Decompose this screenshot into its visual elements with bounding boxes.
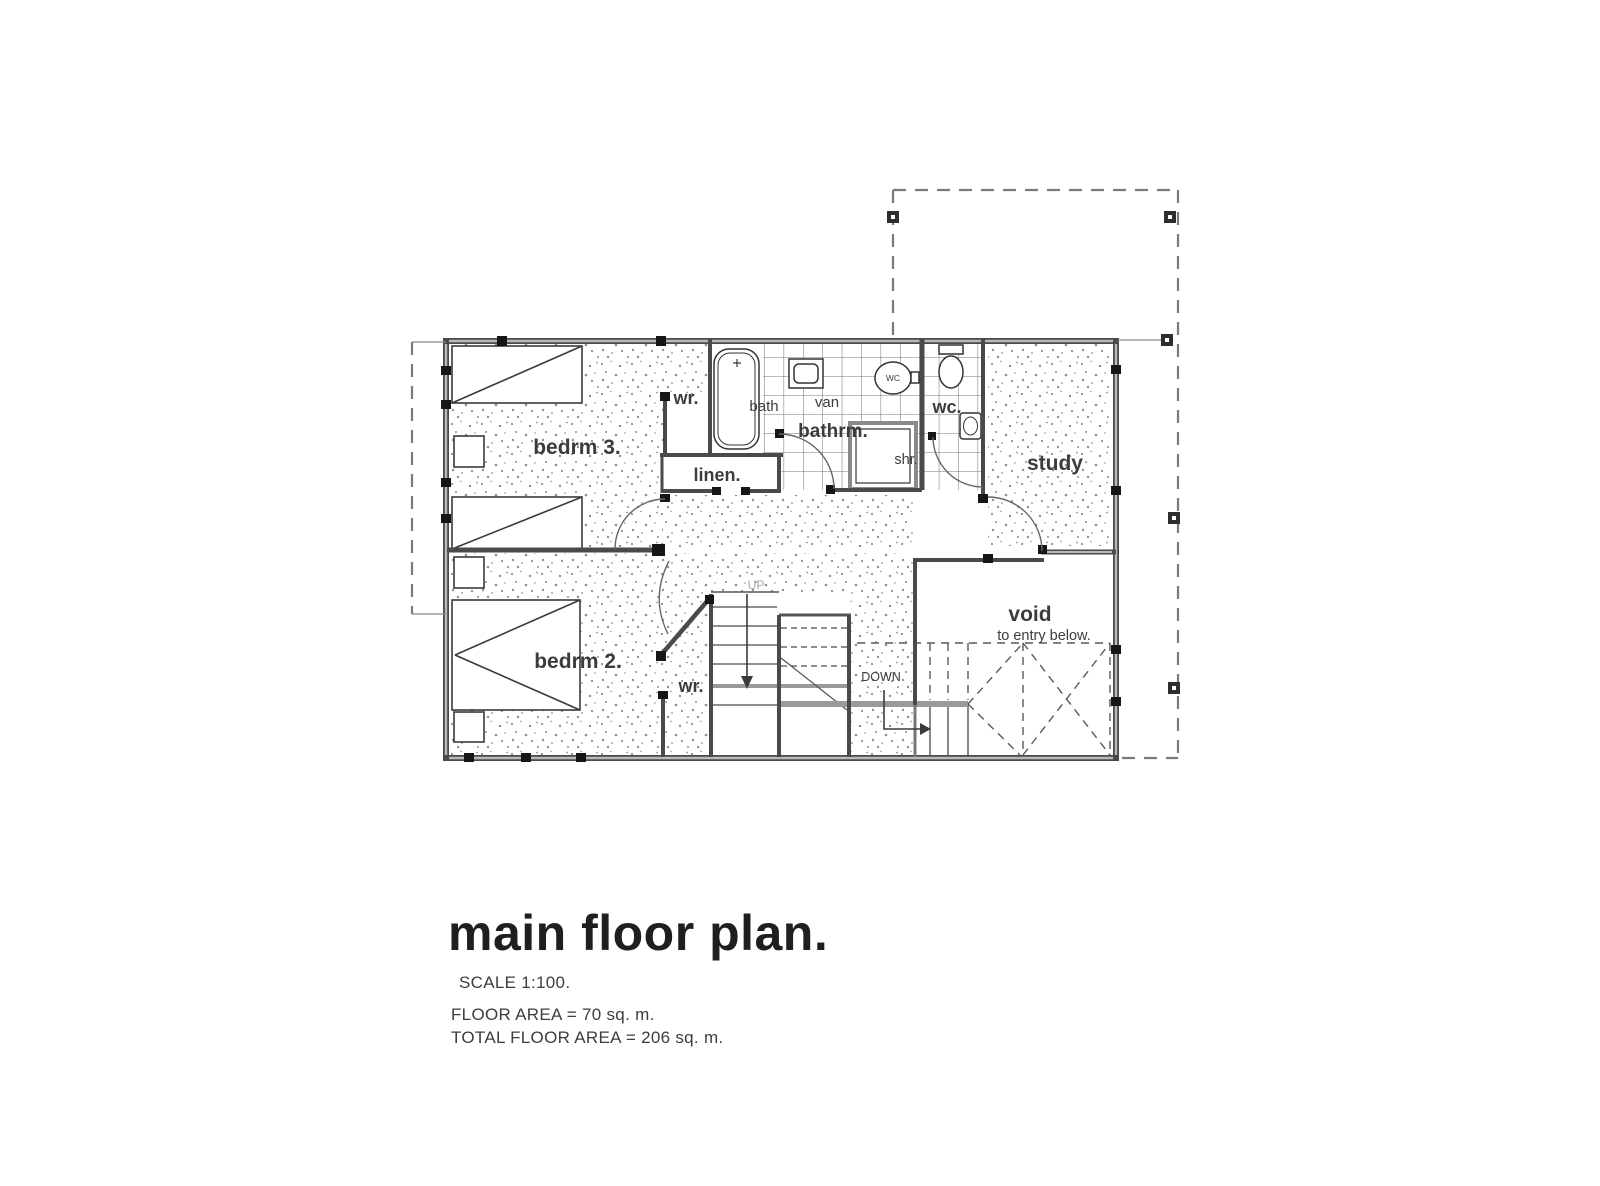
drawing-sheet: bedrm 3. bedrm 2. wr. wr. linen. bath va… <box>0 0 1600 1186</box>
sheet-floor-area: FLOOR AREA = 70 sq. m. <box>451 1005 655 1024</box>
sheet-scale: SCALE 1:100. <box>459 973 570 992</box>
nightstand-3 <box>454 712 484 742</box>
room-label-bedrm2: bedrm 2. <box>534 650 622 673</box>
stair-label-down: DOWN <box>861 670 901 684</box>
floor-plan-drawing: bedrm 3. bedrm 2. wr. wr. linen. bath va… <box>0 0 1600 1186</box>
basin-wc <box>960 413 981 439</box>
room-label-wc: wc. <box>931 397 961 417</box>
lower-stair-solid-lines <box>930 705 968 756</box>
sheet-total-floor-area: TOTAL FLOOR AREA = 206 sq. m. <box>451 1028 723 1047</box>
nightstand-2 <box>454 557 484 588</box>
room-label-void: void <box>1008 603 1051 626</box>
fixture-label-wc: WC <box>886 373 900 383</box>
room-label-linen: linen. <box>693 465 740 485</box>
room-label-bedrm3: bedrm 3. <box>533 436 621 459</box>
toilet-wc <box>939 345 963 388</box>
room-label-void-sub: to entry below. <box>997 628 1091 644</box>
bed-single-1 <box>452 346 582 403</box>
room-label-study: study <box>1027 452 1083 475</box>
room-label-bathrm: bathrm. <box>798 421 868 442</box>
vanity-sink <box>789 359 823 388</box>
bed-single-2 <box>452 497 582 549</box>
nightstand-1 <box>454 436 484 467</box>
sheet-title: main floor plan. <box>448 905 828 961</box>
room-label-wr-bottom: wr. <box>677 676 703 696</box>
room-label-shr: shr. <box>894 452 917 468</box>
room-label-bath: bath <box>749 398 778 415</box>
room-label-van: van <box>815 394 839 411</box>
stair-label-up: UP <box>748 578 765 592</box>
room-label-wr-top: wr. <box>672 388 698 408</box>
